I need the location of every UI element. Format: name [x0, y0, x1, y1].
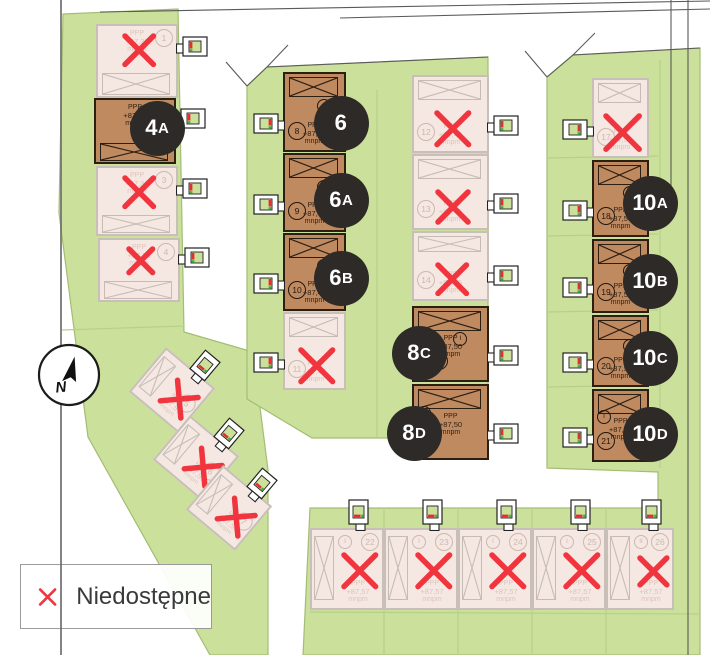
building-1: 1PPP+87,33mnpm [96, 24, 178, 98]
plot-number: 23 [435, 533, 453, 551]
building-4: 4PPP+87,33mnpm [98, 238, 180, 302]
unavailable-x-icon [120, 173, 158, 211]
driveway [487, 113, 523, 141]
hatch-box [418, 236, 481, 252]
building-label-10B[interactable]: 10B [623, 254, 678, 309]
unavailable-x-icon [296, 345, 338, 387]
hatch-box [104, 281, 172, 299]
driveway [487, 421, 523, 449]
building-label-10C[interactable]: 10C [623, 331, 678, 386]
unavailable-x-icon [561, 550, 603, 592]
hatch-box [418, 159, 481, 179]
driveway [176, 176, 212, 204]
hatch-box [536, 536, 556, 600]
driveway [487, 191, 523, 219]
driveway [249, 350, 285, 378]
driveway [178, 245, 214, 273]
unavailable-x-icon [413, 550, 455, 592]
hatch-box [102, 215, 170, 233]
roman-numeral: I [412, 535, 426, 549]
building-14: 14PPP+87,45mnpm [412, 231, 489, 301]
unavailable-x-icon [120, 31, 158, 69]
roman-numeral: I [560, 535, 574, 549]
driveway [487, 343, 523, 371]
hatch-box [102, 73, 170, 95]
building-label-6A[interactable]: 6A [314, 173, 369, 228]
building-label-6[interactable]: 6 [314, 96, 369, 151]
roman-numeral: I [486, 535, 500, 549]
driveway [639, 495, 667, 531]
plot-number: 24 [509, 533, 527, 551]
hatch-box [388, 536, 408, 600]
building-label-8D[interactable]: 8D [387, 406, 442, 461]
building-17: 17PPP+87,50mnpm [592, 78, 649, 158]
driveway [558, 350, 594, 378]
legend-unavailable: Niedostępne [20, 564, 212, 629]
unavailable-x-icon [124, 244, 158, 278]
plot-number: 25 [583, 533, 601, 551]
driveway [558, 198, 594, 226]
unavailable-x-icon [339, 550, 381, 592]
hatch-box [610, 536, 630, 600]
building-label-10A[interactable]: 10A [623, 176, 678, 231]
driveway [494, 495, 522, 531]
unavailable-x-icon [433, 187, 473, 227]
legend-label: Niedostępne [76, 583, 211, 611]
plot-number: 26 [651, 533, 669, 551]
unavailable-x-icon [37, 577, 58, 617]
buildings-layer: 1PPP+87,33mnpmPPP+87,33mnpm4A3PPP+87,33m… [0, 0, 710, 655]
driveway [487, 263, 523, 291]
driveway [558, 425, 594, 453]
building-11: 11PPP+87,45mnpm [283, 312, 346, 390]
building-25: 25IPPP+87,57mnpm [532, 528, 606, 610]
building-5: 5PPP+87,57mnpm [129, 347, 215, 433]
property-boundary-line [60, 0, 62, 655]
plot-number: 22 [361, 533, 379, 551]
building-3: 3PPP+87,33mnpm [96, 166, 178, 236]
driveway [420, 495, 448, 531]
driveway [249, 192, 285, 220]
siteplan-widget: { "legend": { "label": "Niedostępne", "x… [0, 0, 710, 655]
driveway [568, 495, 596, 531]
building-label-10D[interactable]: 10D [623, 407, 678, 462]
building-label-8C[interactable]: 8C [392, 326, 447, 381]
hatch-box [598, 83, 641, 103]
hatch-box [462, 536, 482, 600]
building-12: 12PPP+87,45mnpm [412, 75, 489, 153]
hatch-box [289, 317, 338, 337]
roman-numeral: I [338, 535, 352, 549]
unavailable-x-icon [601, 111, 644, 154]
building-label-6B[interactable]: 6B [314, 251, 369, 306]
building-13: 13PPP+87,45mnpm [412, 154, 489, 230]
driveway [249, 271, 285, 299]
building-22: 22IPPP+87,57mnpm [310, 528, 384, 610]
driveway [249, 111, 285, 139]
roman-numeral: II [634, 535, 648, 549]
driveway [176, 34, 212, 62]
unavailable-x-icon [487, 550, 529, 592]
driveway [558, 275, 594, 303]
hatch-box [289, 77, 338, 97]
building-label-4A[interactable]: 4A [130, 101, 185, 156]
driveway [558, 117, 594, 145]
building-24: 24IPPP+87,57mnpm [458, 528, 532, 610]
unavailable-x-icon [635, 553, 672, 590]
unavailable-x-icon [432, 108, 474, 150]
building-26: 26IIPPP+87,57mnpm [606, 528, 674, 610]
unavailable-x-icon [433, 260, 471, 298]
compass-north-icon: N [35, 341, 103, 409]
driveway [346, 495, 374, 531]
building-23: 23IPPP+87,57mnpm [384, 528, 458, 610]
hatch-box [418, 80, 481, 100]
hatch-box [314, 536, 334, 600]
